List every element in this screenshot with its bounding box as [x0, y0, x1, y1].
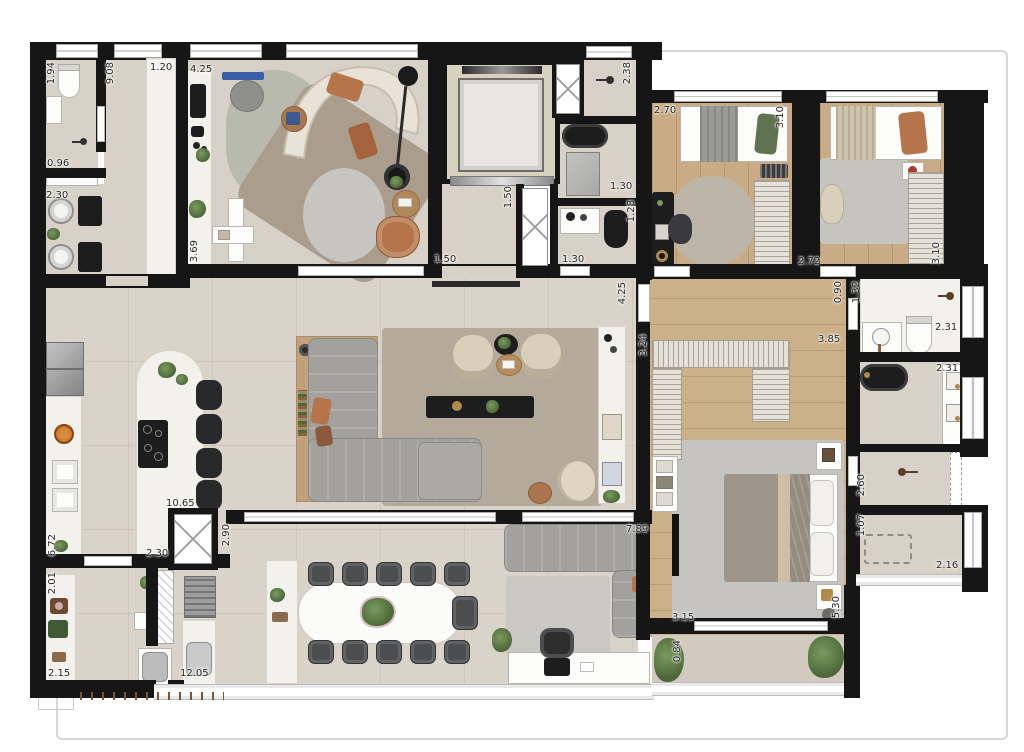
- hall-opening: [442, 266, 516, 278]
- desk-chair: [668, 214, 692, 244]
- floor-shower-260: [860, 452, 960, 508]
- dimension-label: 0.84: [672, 640, 683, 662]
- dimension-label: 1.94: [46, 62, 57, 84]
- dimension-label: 2.70: [654, 105, 676, 116]
- window: [826, 91, 938, 102]
- dining-chair: [444, 640, 470, 664]
- closet-wardrobe-top: [652, 340, 790, 368]
- door-opening: [106, 276, 148, 286]
- dimension-label: 9.08: [105, 62, 116, 84]
- burner-icon: [155, 430, 162, 437]
- window: [964, 512, 982, 568]
- dimension-label: 3.85: [818, 334, 840, 345]
- toilet-icon: [604, 210, 628, 248]
- paper-icon: [580, 662, 594, 672]
- wall: [844, 585, 860, 698]
- burner-icon: [143, 425, 152, 434]
- dimension-label: 10.65: [166, 498, 195, 509]
- dining-chair: [410, 562, 436, 586]
- dresser-drawer: [656, 460, 673, 473]
- tv-icon: [190, 84, 206, 118]
- tv-icon: [672, 514, 679, 576]
- wall: [428, 60, 442, 278]
- dimension-label: 4.25: [617, 282, 628, 304]
- dimension-label: 6.72: [47, 534, 58, 556]
- wall: [792, 101, 820, 267]
- elevator-sill: [450, 176, 554, 186]
- plant-icon: [390, 176, 403, 188]
- dining-chair: [308, 562, 334, 586]
- tray-icon: [272, 612, 288, 622]
- den-bench-blue: [222, 72, 264, 80]
- dining-chair: [376, 562, 402, 586]
- sliding-door: [244, 512, 496, 522]
- wall: [44, 168, 106, 178]
- living-armchair: [520, 333, 562, 378]
- bed-duvet: [724, 474, 780, 582]
- swivel-chair: [556, 460, 596, 502]
- pan-icon: [54, 424, 74, 444]
- sink-icon: [46, 96, 62, 124]
- shower-arm-icon: [596, 79, 607, 81]
- floor-plan: 1.94 0.96 2.30 9.08 1.20 4.25 3.69 2.38 …: [0, 0, 1024, 752]
- duct-x-icon: [174, 514, 212, 564]
- book-icon: [398, 198, 412, 207]
- window: [674, 91, 782, 102]
- pouf: [528, 482, 552, 504]
- laundry-hamper: [78, 196, 102, 226]
- wall: [556, 198, 652, 206]
- dimension-label: 3.10: [931, 242, 942, 264]
- washer-icon: [48, 244, 74, 270]
- marble-wall-finish: [146, 58, 176, 278]
- wall: [146, 568, 158, 646]
- wall: [550, 184, 558, 268]
- console-deco-icon: [604, 334, 612, 342]
- wardrobe: [754, 180, 790, 268]
- dining-chair: [342, 562, 368, 586]
- window: [114, 44, 162, 58]
- curtain-ticks: [80, 692, 224, 700]
- plant-icon: [47, 228, 60, 240]
- dimension-label: 0.90: [833, 281, 844, 303]
- dimension-label: 1.30: [610, 181, 632, 192]
- dimension-label: 2.31: [935, 322, 957, 333]
- terrace-buffet: [266, 560, 298, 684]
- desk-deco-icon: [657, 200, 663, 206]
- wall: [846, 352, 964, 362]
- dimension-label: 2.60: [856, 474, 867, 496]
- bed-blanket: [836, 106, 876, 160]
- dimension-label: 5.30: [831, 596, 842, 618]
- dining-chair: [452, 596, 478, 630]
- balcony-railing: [652, 682, 844, 696]
- tray-icon: [48, 620, 68, 638]
- dimension-label: 7.89: [626, 524, 648, 535]
- dimension-label: 3.69: [189, 240, 200, 262]
- door-opening: [84, 556, 132, 566]
- kitchen-sink: [52, 488, 78, 512]
- dining-chair: [444, 562, 470, 586]
- console-art-icon: [602, 462, 622, 486]
- window: [962, 377, 984, 439]
- dimension-label: 1.07: [856, 514, 867, 536]
- shower-arm-icon: [906, 471, 918, 473]
- kitchen-sink: [52, 460, 78, 484]
- elevator-car: [458, 78, 544, 172]
- balcony-railing: [856, 574, 962, 586]
- door-opening: [97, 106, 105, 142]
- dimension-label: 1.20: [150, 62, 172, 73]
- bed-pillow: [810, 480, 834, 526]
- dimension-label: 2.15: [48, 668, 70, 679]
- window: [286, 44, 418, 58]
- duct-x-icon: [556, 64, 580, 114]
- console-art-icon: [602, 414, 622, 440]
- bed-sheet-fold: [778, 474, 790, 582]
- bathtub: [562, 124, 608, 148]
- dimension-label: 1.30: [562, 254, 584, 265]
- plant-icon: [176, 374, 188, 385]
- bed-pillow: [810, 532, 834, 576]
- wall: [176, 58, 188, 280]
- sliding-door: [298, 266, 424, 276]
- bedroom2-armchair: [820, 184, 844, 224]
- wall: [944, 90, 984, 277]
- window: [586, 46, 632, 58]
- washer-icon: [48, 198, 74, 224]
- door-opening: [654, 266, 690, 277]
- basin-icon: [580, 214, 587, 221]
- door-opening: [820, 266, 856, 277]
- bed-duvet: [790, 474, 810, 582]
- dimension-label: 2.30: [146, 548, 168, 559]
- fridge-divider: [46, 368, 84, 370]
- vanity: [560, 208, 600, 234]
- door-opening: [560, 266, 590, 276]
- faucet-icon: [864, 372, 870, 378]
- closet-wardrobe-right: [752, 368, 790, 422]
- elevator-door-top: [462, 66, 542, 74]
- desk-deco-icon: [655, 224, 669, 240]
- support-sink: [142, 652, 168, 682]
- plant-icon: [498, 337, 511, 349]
- burner-icon: [144, 444, 152, 452]
- door-opening: [638, 284, 650, 322]
- dimension-label: 1.32: [851, 281, 862, 303]
- console-deco-icon: [610, 346, 617, 353]
- living-armchair: [452, 334, 494, 380]
- window: [962, 286, 984, 338]
- nightstand-art-icon: [822, 448, 835, 462]
- wall: [846, 444, 964, 452]
- shower-arm-icon: [72, 141, 81, 143]
- den-armchair: [376, 216, 420, 258]
- dimension-label: 2.16: [936, 560, 958, 571]
- coffee-table: [426, 396, 534, 418]
- floor-lamp-head-icon: [398, 66, 418, 86]
- plant-icon: [196, 148, 210, 162]
- book-icon: [502, 360, 515, 369]
- glass-door: [950, 452, 962, 506]
- desk-deco-icon: [218, 230, 230, 240]
- dimension-label: 4.25: [190, 64, 212, 75]
- bar-stool: [196, 414, 222, 444]
- counter-deco-icon: [52, 652, 66, 662]
- dimension-label: 2.31: [936, 363, 958, 374]
- duct-x-icon: [522, 188, 548, 266]
- grill-icon: [184, 576, 216, 618]
- dimension-label: 3.15: [672, 612, 694, 623]
- terrace-door-track: [154, 684, 654, 700]
- dimension-label: 2.30: [46, 190, 68, 201]
- tray-icon: [286, 112, 300, 125]
- dimension-label: 0.96: [47, 158, 69, 169]
- den-rug-round: [303, 168, 385, 262]
- shower-head-icon: [606, 76, 614, 84]
- balcony-bench: [864, 534, 912, 564]
- dimension-label: 12.05: [180, 668, 209, 679]
- bed-bench: [760, 164, 788, 178]
- bar-stool: [196, 380, 222, 410]
- wall: [556, 116, 652, 124]
- bar-stool: [196, 480, 222, 510]
- desk-deco-icon: [656, 250, 668, 262]
- dimension-label: 1.50: [503, 186, 514, 208]
- shower-head-icon: [898, 468, 906, 476]
- dimension-label: 1.50: [434, 254, 456, 265]
- dimension-label: 2.01: [47, 572, 58, 594]
- bed-pillow: [898, 111, 928, 155]
- sofa-pillow: [315, 425, 334, 447]
- coffee-machine-dot: [55, 602, 63, 610]
- shower-head-icon: [80, 138, 87, 145]
- wall: [30, 42, 46, 686]
- dresser-drawer: [656, 476, 673, 489]
- dimension-label: 3.24: [638, 334, 649, 356]
- dimension-label: 2.38: [622, 62, 633, 84]
- wall: [636, 277, 650, 640]
- dresser-drawer: [656, 492, 673, 506]
- laptop-icon: [544, 658, 570, 676]
- dining-chair: [410, 640, 436, 664]
- basin-icon: [872, 328, 890, 346]
- dining-chair: [308, 640, 334, 664]
- toilet-tank: [906, 316, 932, 324]
- window: [190, 44, 262, 58]
- decor-books-icon: [298, 390, 307, 436]
- basin-icon: [566, 212, 575, 221]
- dimension-label: 2.90: [221, 524, 232, 546]
- shower-marble: [566, 152, 600, 196]
- laundry-hamper: [78, 242, 102, 272]
- burner-icon: [154, 452, 163, 461]
- wall-art-icon: [432, 281, 520, 287]
- terrace-desk: [508, 652, 650, 684]
- bar-stool: [196, 448, 222, 478]
- sliding-door: [522, 512, 634, 522]
- den-ottoman: [230, 80, 264, 112]
- dining-chair: [376, 640, 402, 664]
- dimension-label: 1.28: [626, 200, 637, 222]
- office-chair: [540, 628, 574, 658]
- coffee-station-icon: [191, 126, 204, 137]
- table-deco-icon: [452, 401, 462, 411]
- shower-arm-icon: [938, 295, 948, 297]
- dining-chair: [342, 640, 368, 664]
- window: [56, 44, 98, 58]
- dimension-label: 3.10: [775, 106, 786, 128]
- bed-blanket: [700, 106, 738, 162]
- dimension-label: 2.72: [798, 256, 820, 267]
- toilet-tank: [58, 64, 80, 71]
- living-sofa-chaise: [418, 442, 482, 500]
- closet-wardrobe-left: [652, 368, 682, 460]
- sliding-door: [694, 621, 828, 631]
